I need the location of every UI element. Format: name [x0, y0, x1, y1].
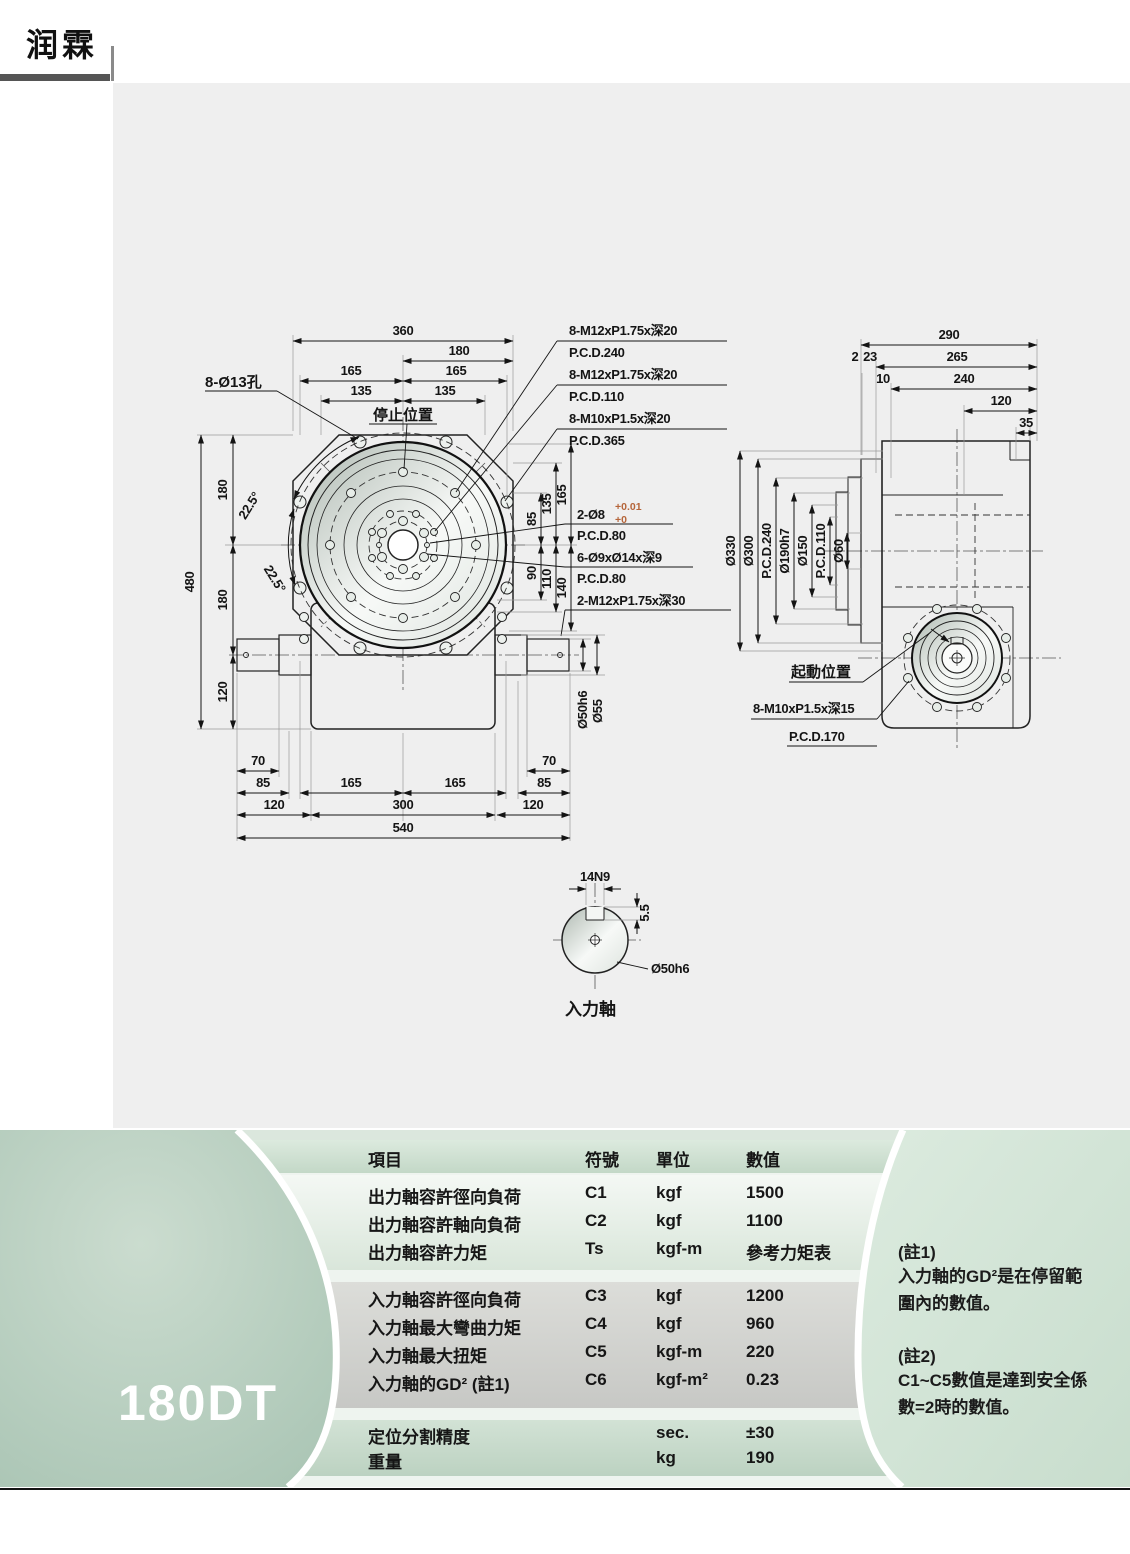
spec-cell-symbol: C2 [585, 1211, 607, 1231]
spec-cell-unit: kgf [656, 1286, 682, 1306]
spec-header-item: 項目 [368, 1146, 402, 1171]
side-dim-240: 240 [954, 371, 975, 386]
leader-3-tol-upper: +0.01 [615, 501, 642, 513]
spec-cell-unit: kgf [656, 1183, 682, 1203]
front-angle-1: 22.5° [235, 489, 263, 522]
spec-row: 出力軸容許軸向負荷 C2 kgf 1100 [0, 1211, 1130, 1235]
spec-cell-symbol: Ts [585, 1239, 604, 1259]
leader-1-l2: P.C.D.110 [569, 389, 624, 404]
front-angle-2: 22.5° [261, 562, 289, 595]
spec-cell-item: 入力軸的GD² (註1) [368, 1370, 510, 1395]
spec-cell-value: 220 [746, 1342, 774, 1362]
datasheet-page: 润霖 180DT [0, 0, 1130, 1554]
spec-cell-item: 出力軸容許軸向負荷 [368, 1211, 521, 1236]
front-dim-85r: 85 [524, 512, 539, 526]
spec-row: 出力軸容許徑向負荷 C1 kgf 1500 [0, 1183, 1130, 1207]
side-dia-60: Ø60 [831, 539, 846, 563]
drawing-panel: 360 180 165 165 135 135 停止位置 8-Ø13孔 [113, 83, 1130, 1128]
spec-cell-unit: kgf-m [656, 1342, 702, 1362]
side-dim-2: 2 [852, 349, 859, 364]
front-shaft-dia-1: Ø50h6 [575, 691, 590, 729]
logo-underline-bar [0, 74, 110, 81]
spec-header-value: 數值 [746, 1146, 780, 1171]
spec-cell-value: 參考力矩表 [746, 1239, 831, 1264]
front-dim-135r: 135 [539, 494, 554, 515]
input-shaft-caption: 入力軸 [565, 999, 616, 1019]
front-holes-label: 8-Ø13孔 [205, 374, 262, 391]
front-dim-180l2: 180 [215, 590, 230, 611]
spec-cell-item: 定位分割精度 [368, 1423, 470, 1448]
leader-2-l1: 8-M10xP1.5x深20 [569, 411, 670, 426]
side-dim-290: 290 [939, 327, 960, 342]
front-dim-300: 300 [393, 797, 414, 812]
front-shaft-dia-2: Ø55 [590, 699, 605, 723]
spec-cell-item: 入力軸最大扭矩 [368, 1342, 487, 1367]
spec-cell-item: 出力軸容許力矩 [368, 1239, 487, 1264]
spec-header-symbol: 符號 [585, 1146, 619, 1171]
spec-cell-value: 0.23 [746, 1370, 779, 1390]
spec-cell-item: 出力軸容許徑向負荷 [368, 1183, 521, 1208]
spec-cell-item: 重量 [368, 1448, 402, 1473]
company-logo: 润霖 [26, 20, 98, 66]
front-dim-165a: 165 [341, 363, 362, 378]
start-position-label: 起動位置 [790, 663, 851, 681]
spec-cell-unit: kgf-m² [656, 1370, 708, 1390]
front-dim-140r: 140 [554, 578, 569, 599]
front-dim-165bl: 165 [341, 775, 362, 790]
spec-cell-unit: kg [656, 1448, 676, 1468]
spec-cell-symbol: C5 [585, 1342, 607, 1362]
spec-cell-unit: kgf [656, 1211, 682, 1231]
spec-header-unit: 單位 [656, 1146, 690, 1171]
front-dim-110r: 110 [539, 569, 554, 589]
note-1: (註1) 入力軸的GD²是在停留範圍內的數值。 [898, 1238, 1098, 1317]
spec-cell-symbol: C1 [585, 1183, 607, 1203]
side-dia-150: Ø150 [795, 536, 810, 567]
logo-corner-line [111, 46, 114, 81]
leader-4-l1: 6-Ø9xØ14x深9 [577, 550, 662, 565]
key-depth-dim: 5.5 [637, 904, 652, 921]
leader-4-l2: P.C.D.80 [577, 571, 626, 586]
front-dim-120br: 120 [523, 797, 544, 812]
front-dim-90r: 90 [524, 566, 539, 580]
side-dia-190h7: Ø190h7 [777, 528, 792, 573]
key-width-dim: 14N9 [580, 869, 610, 884]
spec-cell-symbol: C3 [585, 1286, 607, 1306]
side-pcd-240: P.C.D.240 [759, 523, 774, 579]
note-2-title: (註2) [898, 1342, 1098, 1367]
spec-cell-unit: kgf [656, 1314, 682, 1334]
spec-cell-item: 入力軸最大彎曲力矩 [368, 1314, 521, 1339]
note-1-title: (註1) [898, 1238, 1098, 1263]
spec-cell-symbol: C4 [585, 1314, 607, 1334]
spec-cell-value: 960 [746, 1314, 774, 1334]
side-dim-265: 265 [947, 349, 968, 364]
front-dim-165r: 165 [554, 485, 569, 506]
input-shaft-dia: Ø50h6 [651, 961, 689, 976]
spec-panel: 項目 符號 單位 數值 出力軸容許徑向負荷 C1 kgf 1500 出力軸容許軸… [0, 1130, 1130, 1487]
front-dim-85l: 85 [256, 775, 270, 790]
front-view: 360 180 165 165 135 135 停止位置 8-Ø13孔 [182, 323, 731, 841]
leader-0-l2: P.C.D.240 [569, 345, 625, 360]
spec-row: 重量 kg 190 [0, 1448, 1130, 1472]
spec-cell-value: 1500 [746, 1183, 784, 1203]
side-dim-23: 23 [863, 349, 877, 364]
front-dim-120bl: 120 [264, 797, 285, 812]
spec-cell-value: 190 [746, 1448, 774, 1468]
stop-position-label: 停止位置 [373, 406, 433, 424]
front-dim-135a: 135 [351, 383, 372, 398]
leader-2-l2: P.C.D.365 [569, 433, 625, 448]
footer-rule [0, 1488, 1130, 1490]
front-dim-85r2: 85 [537, 775, 551, 790]
front-dim-180l1: 180 [215, 480, 230, 501]
spec-row: 入力軸最大彎曲力矩 C4 kgf 960 [0, 1314, 1130, 1338]
front-dim-480: 480 [182, 572, 197, 593]
leader-5-l1: 2-M12xP1.75x深30 [577, 593, 685, 608]
input-shaft-detail: 14N9 5.5 Ø50h6 入力軸 [553, 869, 689, 1019]
spec-cell-value: 1200 [746, 1286, 784, 1306]
front-dim-360: 360 [393, 323, 414, 338]
side-bolt-label-l1: 8-M10xP1.5x深15 [753, 701, 854, 716]
side-view: 290 2 23 265 10 240 120 35 [723, 327, 1061, 751]
note-1-body: 入力軸的GD²是在停留範圍內的數值。 [898, 1263, 1098, 1317]
front-dim-540: 540 [393, 820, 414, 835]
front-dim-135b: 135 [435, 383, 456, 398]
spec-cell-symbol: C6 [585, 1370, 607, 1390]
technical-drawing: 360 180 165 165 135 135 停止位置 8-Ø13孔 [113, 83, 1130, 1128]
side-dia-330: Ø330 [723, 536, 738, 567]
side-bolt-label-l2: P.C.D.170 [789, 729, 845, 744]
front-dim-180: 180 [449, 343, 470, 358]
side-dim-120: 120 [991, 393, 1012, 408]
front-dim-70l: 70 [251, 753, 265, 768]
side-pcd-110: P.C.D.110 [813, 523, 828, 578]
model-name-large: 180DT [118, 1374, 278, 1432]
front-dim-165b: 165 [446, 363, 467, 378]
spec-cell-item: 入力軸容許徑向負荷 [368, 1286, 521, 1311]
spec-cell-value: 1100 [746, 1211, 783, 1231]
front-dim-70r: 70 [542, 753, 556, 768]
leader-1-l1: 8-M12xP1.75x深20 [569, 367, 677, 382]
note-2-body: C1~C5數值是達到安全係數=2時的數值。 [898, 1367, 1098, 1421]
leader-3-l2: P.C.D.80 [577, 528, 626, 543]
leader-0-l1: 8-M12xP1.75x深20 [569, 323, 677, 338]
side-dia-300: Ø300 [741, 536, 756, 567]
front-dim-165br: 165 [445, 775, 466, 790]
spec-cell-unit: kgf-m [656, 1239, 702, 1259]
spec-cell-value: ±30 [746, 1423, 774, 1443]
front-dim-120l: 120 [215, 682, 230, 703]
side-dim-10: 10 [876, 371, 890, 386]
spec-cell-unit: sec. [656, 1423, 689, 1443]
note-2: (註2) C1~C5數值是達到安全係數=2時的數值。 [898, 1342, 1098, 1421]
side-dim-35: 35 [1019, 415, 1033, 430]
leader-3-l1: 2-Ø8 [577, 507, 605, 522]
